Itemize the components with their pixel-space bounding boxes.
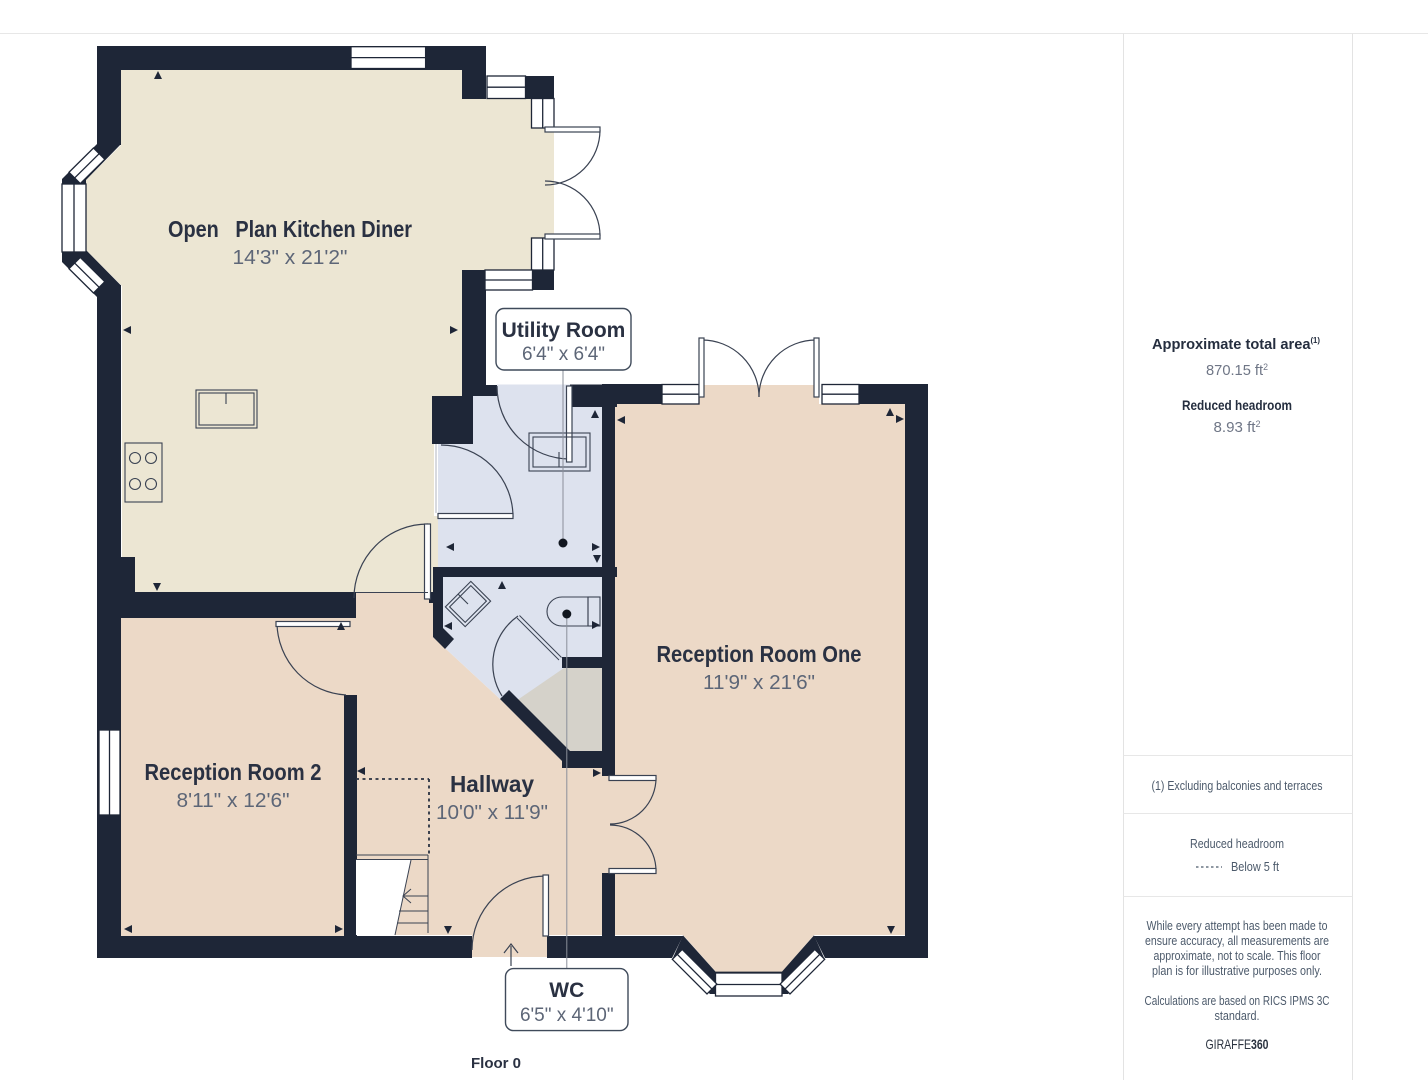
svg-text:While every attempt has been m: While every attempt has been made to xyxy=(1147,919,1328,933)
svg-text:Reduced headroom: Reduced headroom xyxy=(1190,837,1284,851)
svg-text:plan is for illustrative purpo: plan is for illustrative purposes only. xyxy=(1152,964,1322,978)
svg-text:11'9" x 21'6": 11'9" x 21'6" xyxy=(703,672,815,694)
svg-text:Floor 0: Floor 0 xyxy=(471,1055,521,1072)
svg-text:Hallway: Hallway xyxy=(450,771,534,797)
svg-text:standard.: standard. xyxy=(1215,1009,1260,1023)
svg-text:Reduced headroom: Reduced headroom xyxy=(1182,397,1292,413)
svg-text:10'0" x 11'9": 10'0" x 11'9" xyxy=(436,802,548,824)
svg-text:Approximate total area(1): Approximate total area(1) xyxy=(1152,336,1320,353)
svg-text:8.93 ft2: 8.93 ft2 xyxy=(1214,419,1261,436)
svg-text:6'5" x 4'10": 6'5" x 4'10" xyxy=(520,1005,614,1026)
svg-text:14'3" x 21'2": 14'3" x 21'2" xyxy=(233,247,348,269)
svg-text:8'11" x 12'6": 8'11" x 12'6" xyxy=(177,790,290,812)
svg-text:870.15 ft2: 870.15 ft2 xyxy=(1206,362,1268,379)
svg-text:Reception Room 2: Reception Room 2 xyxy=(145,759,322,785)
svg-text:GIRAFFE360: GIRAFFE360 xyxy=(1206,1036,1269,1052)
svg-text:Utility Room: Utility Room xyxy=(502,319,626,342)
svg-text:Below 5 ft: Below 5 ft xyxy=(1231,860,1279,874)
svg-text:Reception Room One: Reception Room One xyxy=(657,641,862,667)
svg-text:Calculations are based on RICS: Calculations are based on RICS IPMS 3C xyxy=(1145,994,1330,1008)
svg-text:(1) Excluding balconies and te: (1) Excluding balconies and terraces xyxy=(1152,779,1323,793)
svg-text:Open Plan Kitchen Diner: Open Plan Kitchen Diner xyxy=(168,216,412,242)
svg-text:approximate, not to scale. Thi: approximate, not to scale. This floor xyxy=(1154,949,1321,963)
svg-text:WC: WC xyxy=(549,979,584,1002)
svg-text:6'4" x 6'4": 6'4" x 6'4" xyxy=(522,344,605,365)
svg-text:ensure accuracy, all measureme: ensure accuracy, all measurements are xyxy=(1145,934,1329,948)
